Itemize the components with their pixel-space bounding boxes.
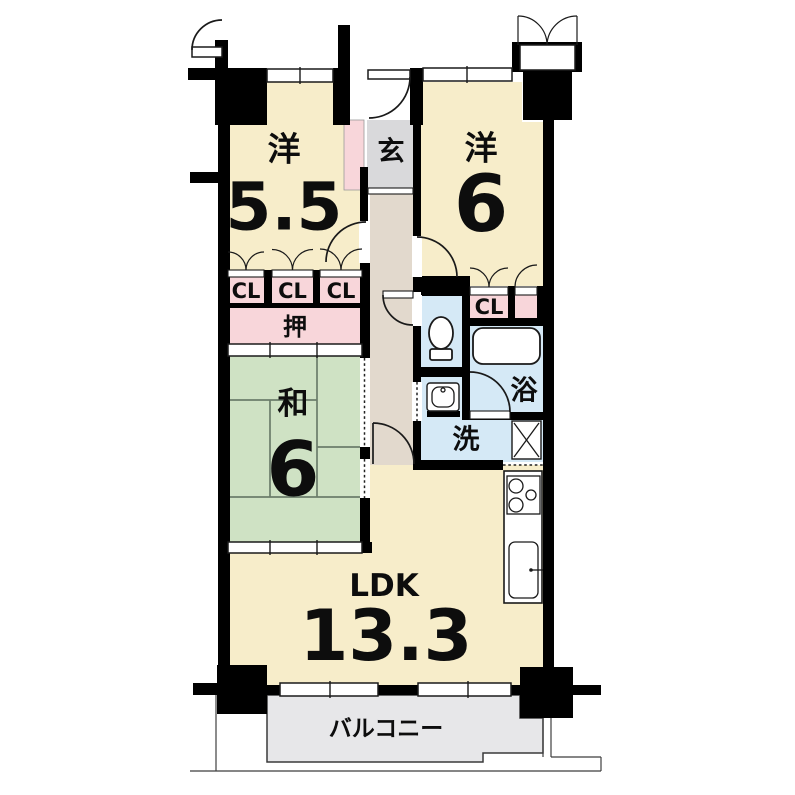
pillar	[520, 667, 573, 718]
fusuma-band-ldk	[228, 542, 362, 553]
wall-segment	[421, 367, 462, 377]
fusuma-band-oshiire	[228, 344, 362, 356]
hallway	[370, 193, 413, 465]
label-entrance: 玄	[378, 136, 405, 168]
wall-segment	[413, 122, 421, 236]
closet-door-band	[228, 270, 264, 277]
wall-segment	[190, 172, 218, 183]
label-balcony: バルコニー	[329, 716, 444, 742]
closet-door-band	[272, 270, 313, 277]
wall-segment	[413, 420, 421, 462]
wall-segment	[413, 460, 503, 470]
kitchen-counter	[504, 471, 542, 603]
wall-segment	[193, 683, 217, 695]
wall-segment	[188, 68, 218, 80]
bathtub	[473, 328, 540, 364]
size-ldk: 13.3	[300, 595, 473, 677]
toilet-door-leaf	[383, 291, 413, 298]
wall-segment	[462, 318, 543, 326]
wall-segment	[362, 542, 372, 553]
toilet-bowl	[429, 317, 453, 349]
entry-door-arc	[369, 77, 410, 118]
door-opening-western-6	[412, 236, 422, 277]
wall-segment	[360, 447, 370, 459]
exterior-door-leaf	[192, 47, 222, 57]
floor-plan-canvas: 洋 5.5 玄 洋 6 CL CL CL CL 押 和 6 浴 洗 LDK 13…	[0, 0, 795, 795]
wall-segment	[523, 72, 572, 120]
closet-door-band	[470, 287, 508, 295]
wall-segment	[543, 120, 554, 667]
wall-segment	[313, 270, 320, 303]
label-japanese-6: 和	[278, 386, 309, 422]
label-closet-1: CL	[232, 279, 261, 303]
wall-segment	[421, 288, 462, 296]
wall-segment	[508, 286, 515, 318]
wall-segment	[573, 685, 601, 695]
kitchen-faucet-knob	[529, 568, 533, 572]
size-western-5-5: 5.5	[226, 169, 343, 246]
size-japanese-6: 6	[267, 425, 320, 514]
window-ldk-right	[418, 683, 511, 696]
wall-segment	[360, 167, 368, 222]
wall-segment	[215, 68, 267, 125]
closet-small	[515, 295, 537, 318]
wall-segment	[264, 270, 272, 303]
label-bath: 浴	[511, 376, 539, 407]
label-closet-2: CL	[278, 279, 307, 303]
closet-door-band	[320, 270, 362, 277]
pillar	[217, 665, 267, 714]
toilet-tank	[430, 349, 452, 360]
wall-segment	[462, 288, 470, 420]
trunk-door-arc	[518, 16, 547, 45]
label-western-5-5: 洋	[268, 130, 301, 169]
wall-segment	[338, 25, 350, 125]
entry-door-leaf	[368, 70, 410, 79]
trunk-door-arc	[547, 16, 577, 45]
window-ldk-left	[280, 683, 378, 696]
wall-segment	[410, 68, 423, 125]
wall-segment	[413, 325, 421, 383]
label-closet-4: CL	[475, 295, 504, 319]
entrance-threshold	[368, 188, 413, 194]
trunk-storage-box	[520, 45, 575, 70]
washbasin-counter-edge	[427, 411, 460, 417]
size-western-6: 6	[454, 160, 508, 250]
bath-door-leaf	[470, 411, 510, 419]
floor-plan: 洋 5.5 玄 洋 6 CL CL CL CL 押 和 6 浴 洗 LDK 13…	[0, 0, 795, 795]
label-closet-3: CL	[327, 279, 356, 303]
label-washroom: 洗	[453, 425, 480, 456]
door-opening-western-5-5	[359, 221, 370, 263]
door-opening-toilet	[412, 295, 422, 326]
label-oshiire: 押	[283, 313, 307, 341]
wall-segment	[537, 286, 543, 318]
closet-door-band	[515, 287, 537, 295]
wall-segment	[228, 303, 362, 308]
